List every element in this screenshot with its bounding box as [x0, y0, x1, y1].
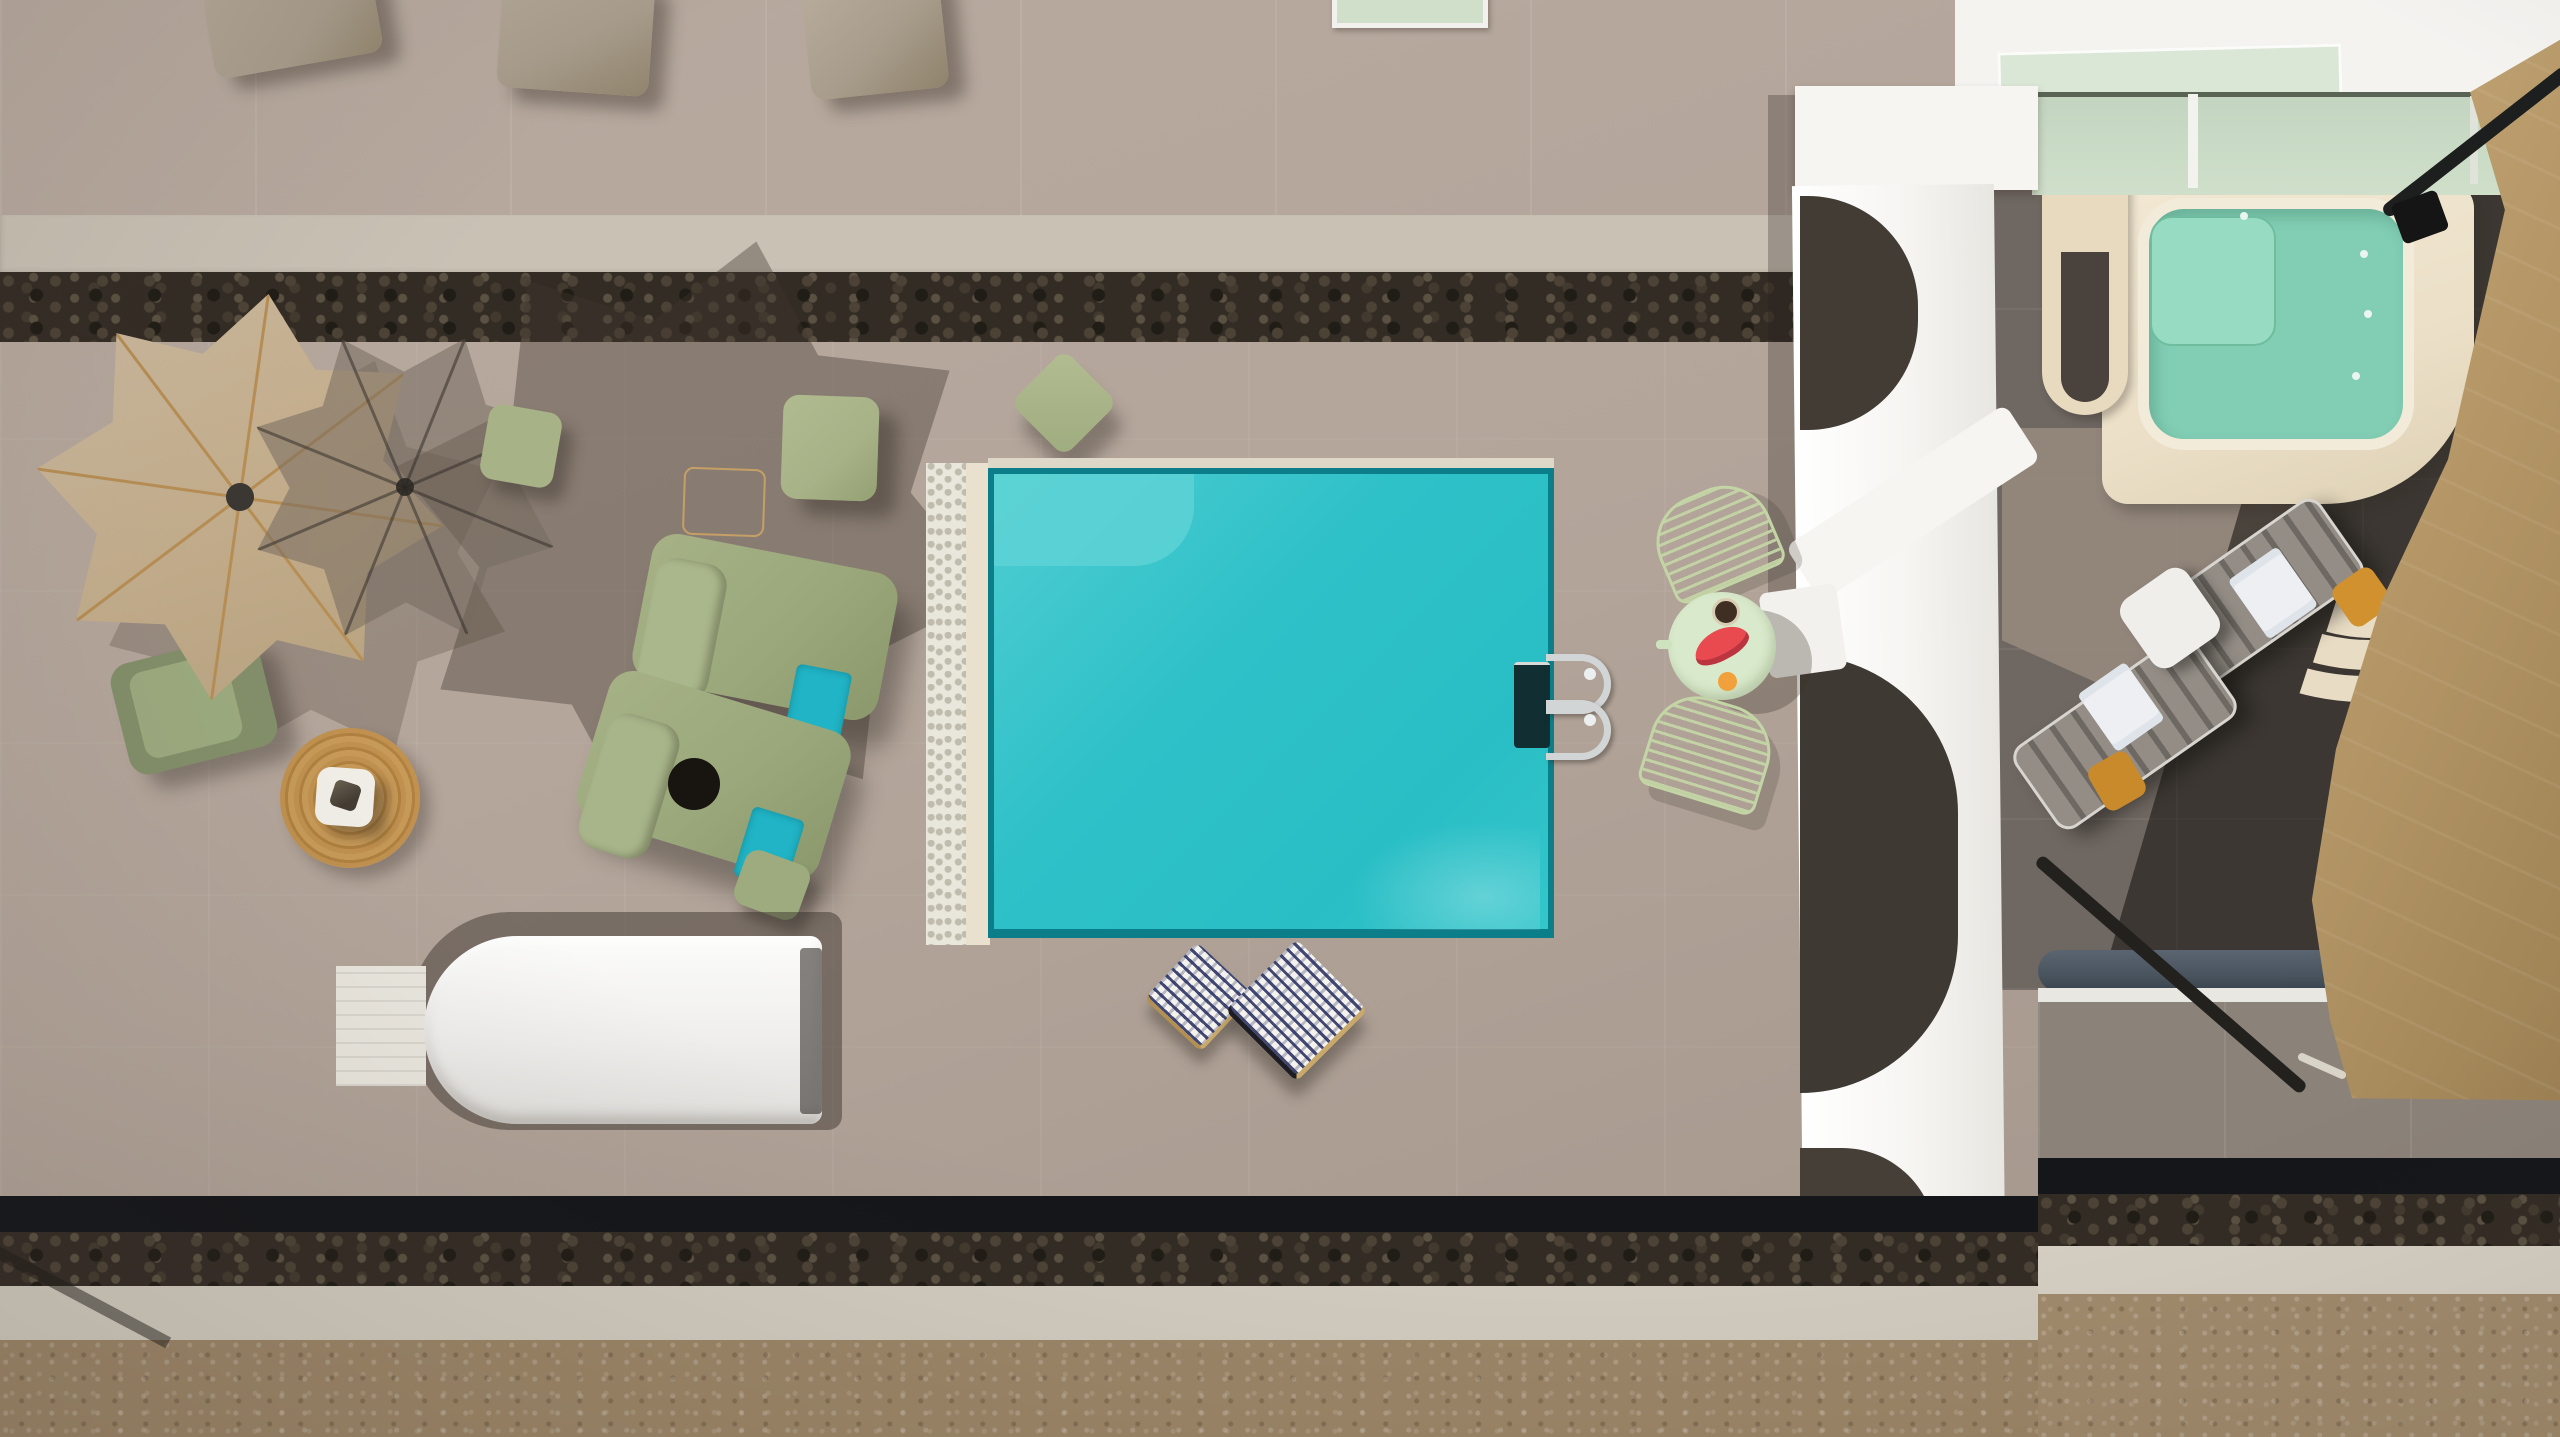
- gravel-ground-left: [0, 1340, 2045, 1437]
- jacuzzi-jet-3: [2352, 372, 2360, 380]
- pouf-sage-small: [478, 402, 564, 490]
- taupe-cushion-top-3: [800, 0, 950, 101]
- pool-ladder-steps: [1514, 662, 1550, 748]
- stone-wall-bottom-left: [0, 1232, 2045, 1288]
- taupe-cushion-top-2: [496, 0, 656, 97]
- aerial-photo-pool-terrace: [0, 0, 2560, 1437]
- white-curb-bottom-left: [0, 1286, 2045, 1342]
- pergola-beam: [1795, 86, 2038, 190]
- daybed-cocoon-white: [424, 936, 822, 1124]
- pool-sparkle: [1350, 820, 1540, 930]
- pool-ladder-knob-2: [1584, 714, 1596, 726]
- mint-table-handle: [1656, 640, 1672, 649]
- jacuzzi-bench: [2150, 216, 2276, 346]
- black-capping-right: [2038, 1158, 2560, 1194]
- paving-outline: [682, 467, 766, 538]
- jacuzzi-jet-1: [2360, 250, 2368, 258]
- table-orange: [1718, 672, 1737, 691]
- curved-bench-hollow: [2061, 252, 2109, 402]
- gravel-ground-right: [2038, 1294, 2560, 1437]
- pool-coping-cream: [966, 463, 990, 945]
- daybed-edge-dark: [800, 948, 822, 1114]
- skylight: [1332, 0, 1488, 28]
- pool-ladder-rail-2: [1546, 700, 1611, 760]
- parasol-mesh-hub: [393, 475, 416, 498]
- pool-ladder-knob-1: [1584, 668, 1596, 680]
- black-capping-left: [0, 1196, 2045, 1234]
- pool-pebble-border: [926, 463, 966, 945]
- striped-mat: [336, 966, 426, 1086]
- table-bowl: [1712, 598, 1740, 626]
- white-curb-bottom-right: [2038, 1246, 2560, 1294]
- jacuzzi-jet-2: [2364, 310, 2372, 318]
- upper-terrace-curb: [0, 215, 1830, 277]
- jacuzzi-jet-4: [2240, 212, 2248, 220]
- pool-steps-wedge: [994, 474, 1194, 566]
- stone-wall-bottom-right: [2038, 1194, 2560, 1246]
- glass-post-1: [2188, 94, 2198, 188]
- pouf-sage-large: [780, 394, 880, 501]
- lounger-olive-2-hat: [668, 758, 720, 810]
